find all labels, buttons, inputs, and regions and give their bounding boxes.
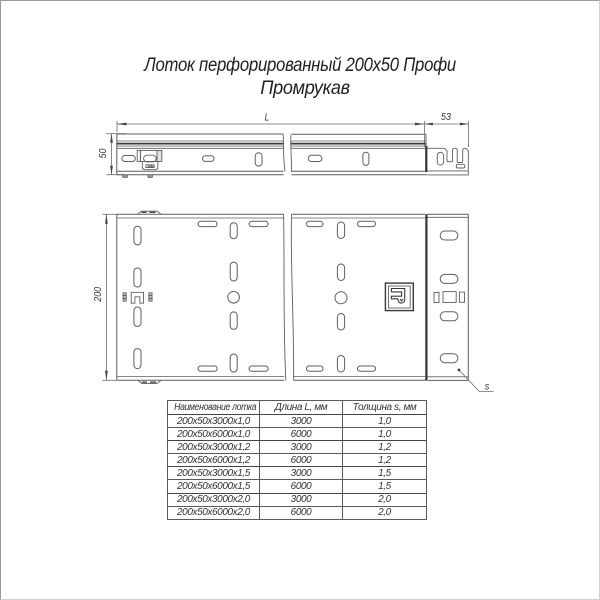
svg-text:53: 53	[441, 111, 451, 123]
svg-text:200: 200	[92, 286, 104, 302]
svg-text:L: L	[265, 112, 270, 124]
svg-text:s: s	[485, 381, 490, 393]
svg-text:50: 50	[97, 148, 109, 158]
